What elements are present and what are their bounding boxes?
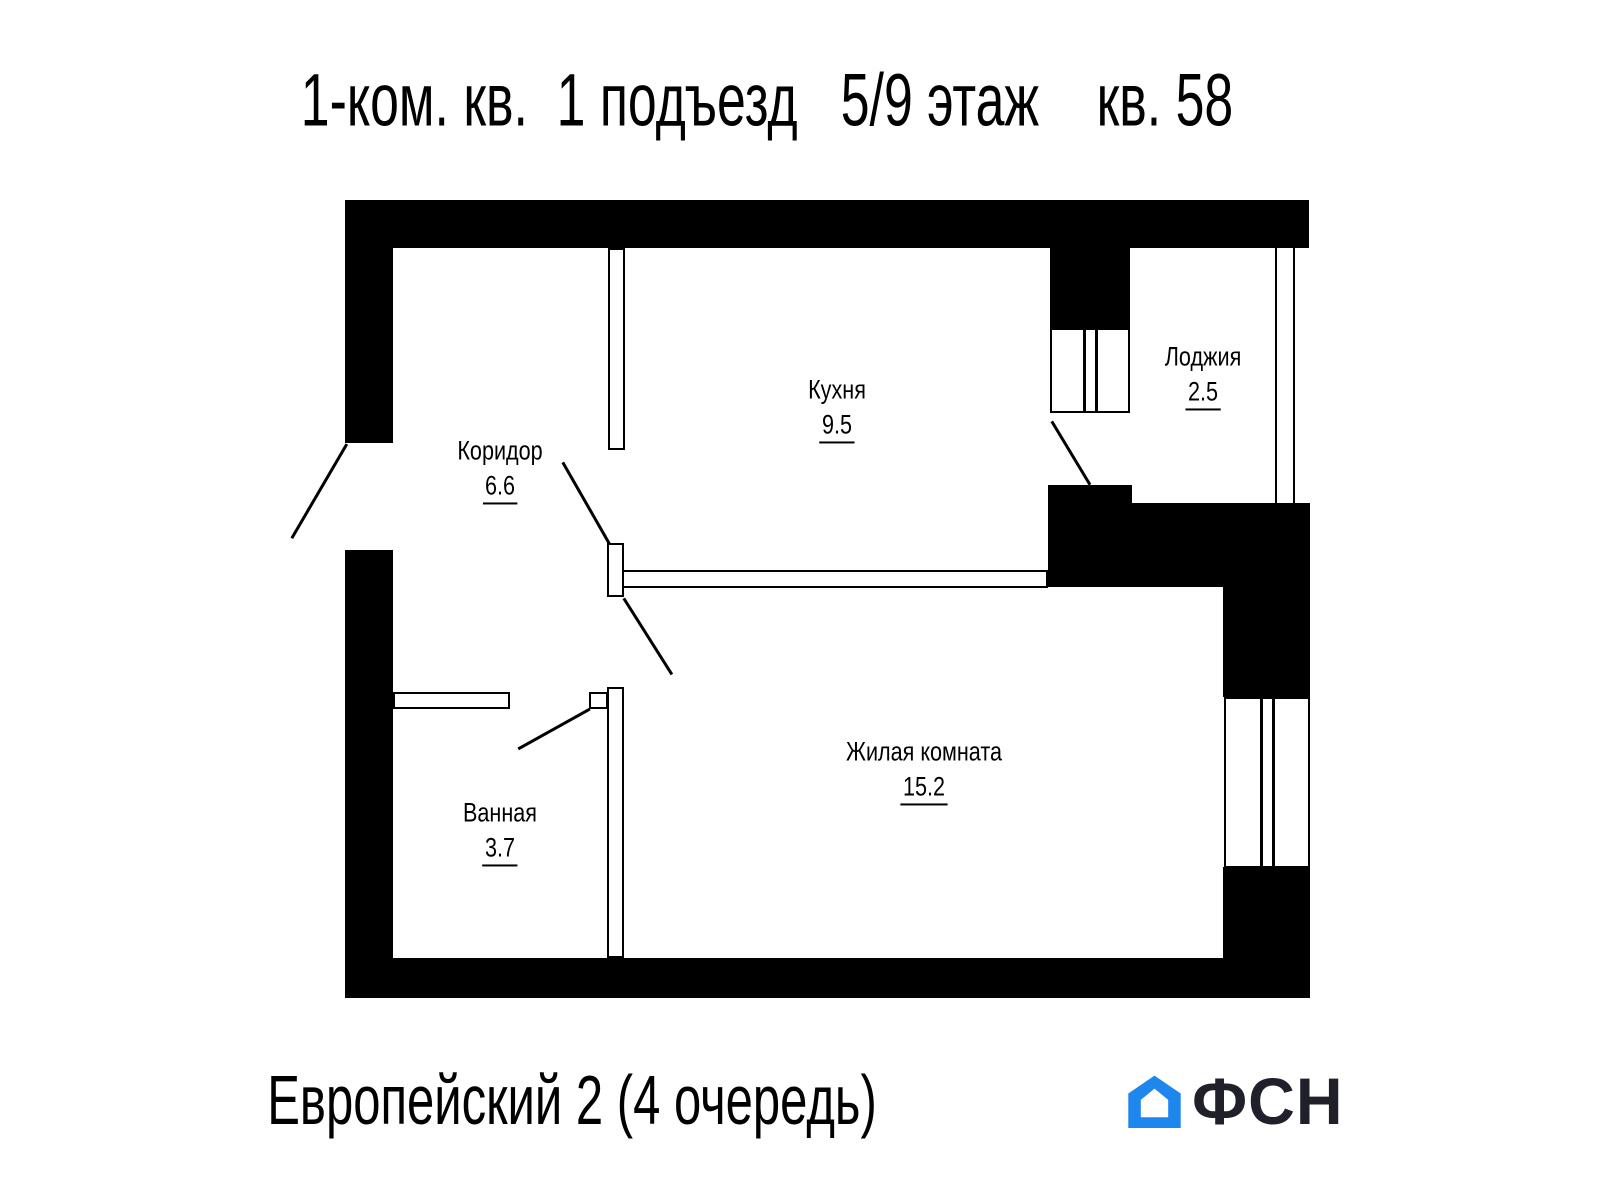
room-area: 2.5 xyxy=(1186,377,1221,411)
room-name: Жилая комната xyxy=(846,736,1002,767)
window-mullion xyxy=(1272,699,1275,866)
partition-bathroom-jamb xyxy=(589,692,608,709)
bathroom-door-leaf xyxy=(518,708,591,750)
logo-text: ФСН xyxy=(1192,1068,1344,1134)
window-mullion xyxy=(1083,330,1086,411)
floor-plan: Кухня 9.5 Лоджия 2.5 Коридор 6.6 Ванная … xyxy=(0,0,1600,1200)
kitchen-door-leaf xyxy=(562,462,611,545)
loggia-door-leaf xyxy=(1051,421,1091,486)
room-label-kitchen: Кухня 9.5 xyxy=(808,374,866,443)
project-title: Европейский 2 (4 очередь) xyxy=(267,1060,877,1140)
living-room-door-leaf xyxy=(623,598,673,675)
partition-corridor-kitchen xyxy=(608,248,625,450)
wall-kitchen-loggia-lower xyxy=(1048,485,1132,587)
partition-bathroom-right xyxy=(607,687,624,958)
room-area: 15.2 xyxy=(901,772,948,806)
room-label-loggia: Лоджия 2.5 xyxy=(1165,341,1242,410)
partition-bathroom-top xyxy=(393,692,510,709)
room-name: Кухня xyxy=(808,374,866,405)
wall-right-upper xyxy=(1223,587,1310,697)
kitchen-loggia-window xyxy=(1050,328,1130,413)
house-icon xyxy=(1126,1074,1183,1128)
wall-top xyxy=(345,200,1309,248)
window-mullion xyxy=(1095,330,1098,411)
room-name: Коридор xyxy=(457,435,542,466)
room-area: 9.5 xyxy=(820,410,855,444)
living-room-window xyxy=(1224,697,1310,868)
loggia-window xyxy=(1275,248,1295,503)
partition-livingroom-horizontal xyxy=(622,570,1048,588)
room-area: 3.7 xyxy=(483,833,518,867)
wall-kitchen-loggia-upper xyxy=(1050,248,1130,328)
window-mullion xyxy=(1260,699,1263,866)
wall-left-upper xyxy=(345,200,393,443)
wall-left-lower xyxy=(345,550,393,998)
room-label-corridor: Коридор 6.6 xyxy=(457,435,542,504)
room-label-living-room: Жилая комната 15.2 xyxy=(846,736,1002,805)
room-label-bathroom: Ванная 3.7 xyxy=(463,797,537,866)
entrance-door-leaf xyxy=(291,444,348,539)
room-area: 6.6 xyxy=(483,471,518,505)
room-name: Лоджия xyxy=(1165,341,1242,372)
developer-logo: ФСН xyxy=(1126,1068,1347,1134)
wall-bottom xyxy=(345,958,1310,998)
wall-below-loggia xyxy=(1132,503,1310,587)
wall-right-lower xyxy=(1223,867,1310,998)
room-name: Ванная xyxy=(463,797,537,828)
